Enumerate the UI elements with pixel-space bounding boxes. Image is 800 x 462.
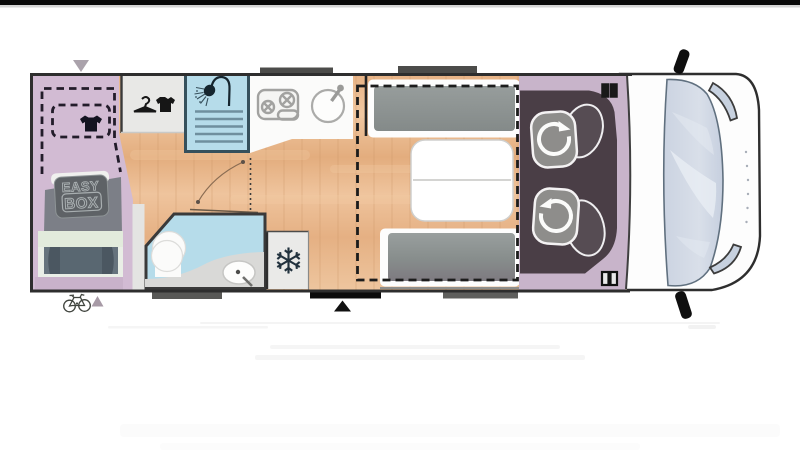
svg-text:BOX: BOX xyxy=(64,194,99,213)
